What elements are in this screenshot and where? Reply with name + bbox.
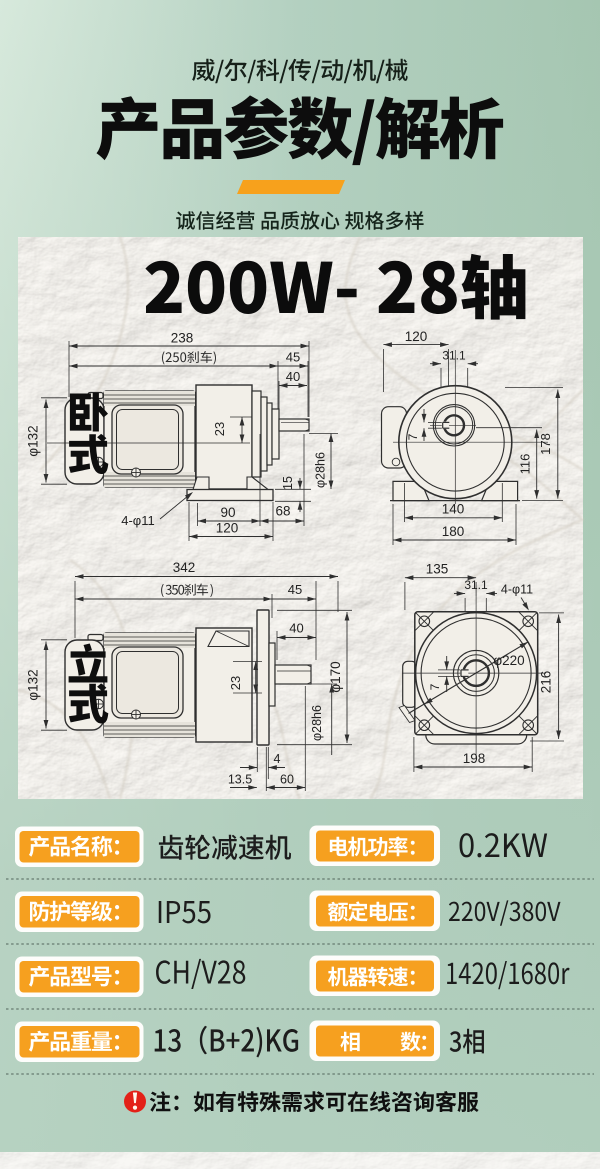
svg-text:40: 40: [286, 369, 300, 384]
svg-text:178: 178: [538, 433, 553, 455]
svg-text:φ28h6: φ28h6: [310, 705, 324, 741]
svg-text:φ132: φ132: [26, 425, 41, 456]
svg-text:23: 23: [212, 422, 227, 436]
svg-text:120: 120: [405, 329, 428, 344]
svg-text:φ170: φ170: [328, 661, 343, 692]
svg-text:45: 45: [288, 582, 302, 597]
svg-text:198: 198: [463, 751, 486, 766]
svg-text:180: 180: [442, 524, 465, 539]
svg-text:15: 15: [281, 476, 295, 490]
svg-text:238: 238: [171, 331, 194, 346]
svg-text:342: 342: [173, 560, 196, 575]
svg-text:31.1: 31.1: [442, 349, 466, 363]
svg-text:68: 68: [275, 504, 290, 519]
svg-text:45: 45: [286, 350, 300, 365]
svg-text:140: 140: [442, 502, 465, 517]
svg-text:φ132: φ132: [26, 669, 41, 700]
svg-text:23: 23: [228, 676, 243, 690]
svg-text:4-φ11: 4-φ11: [501, 583, 533, 597]
svg-text:135: 135: [426, 562, 449, 577]
svg-text:φ28h6: φ28h6: [314, 452, 328, 488]
svg-text:7: 7: [406, 433, 420, 440]
svg-text:120: 120: [216, 521, 239, 536]
svg-text:60: 60: [280, 773, 294, 787]
svg-text:31.1: 31.1: [464, 578, 488, 592]
svg-text:φ220: φ220: [493, 653, 524, 668]
svg-text:4: 4: [274, 752, 281, 766]
svg-text:216: 216: [539, 671, 554, 694]
svg-text:4-φ11: 4-φ11: [121, 513, 154, 528]
svg-text:13.5: 13.5: [228, 773, 252, 787]
svg-text:7: 7: [428, 683, 442, 690]
svg-text:40: 40: [289, 621, 303, 636]
svg-text:116: 116: [518, 454, 533, 475]
svg-text:90: 90: [220, 505, 235, 520]
